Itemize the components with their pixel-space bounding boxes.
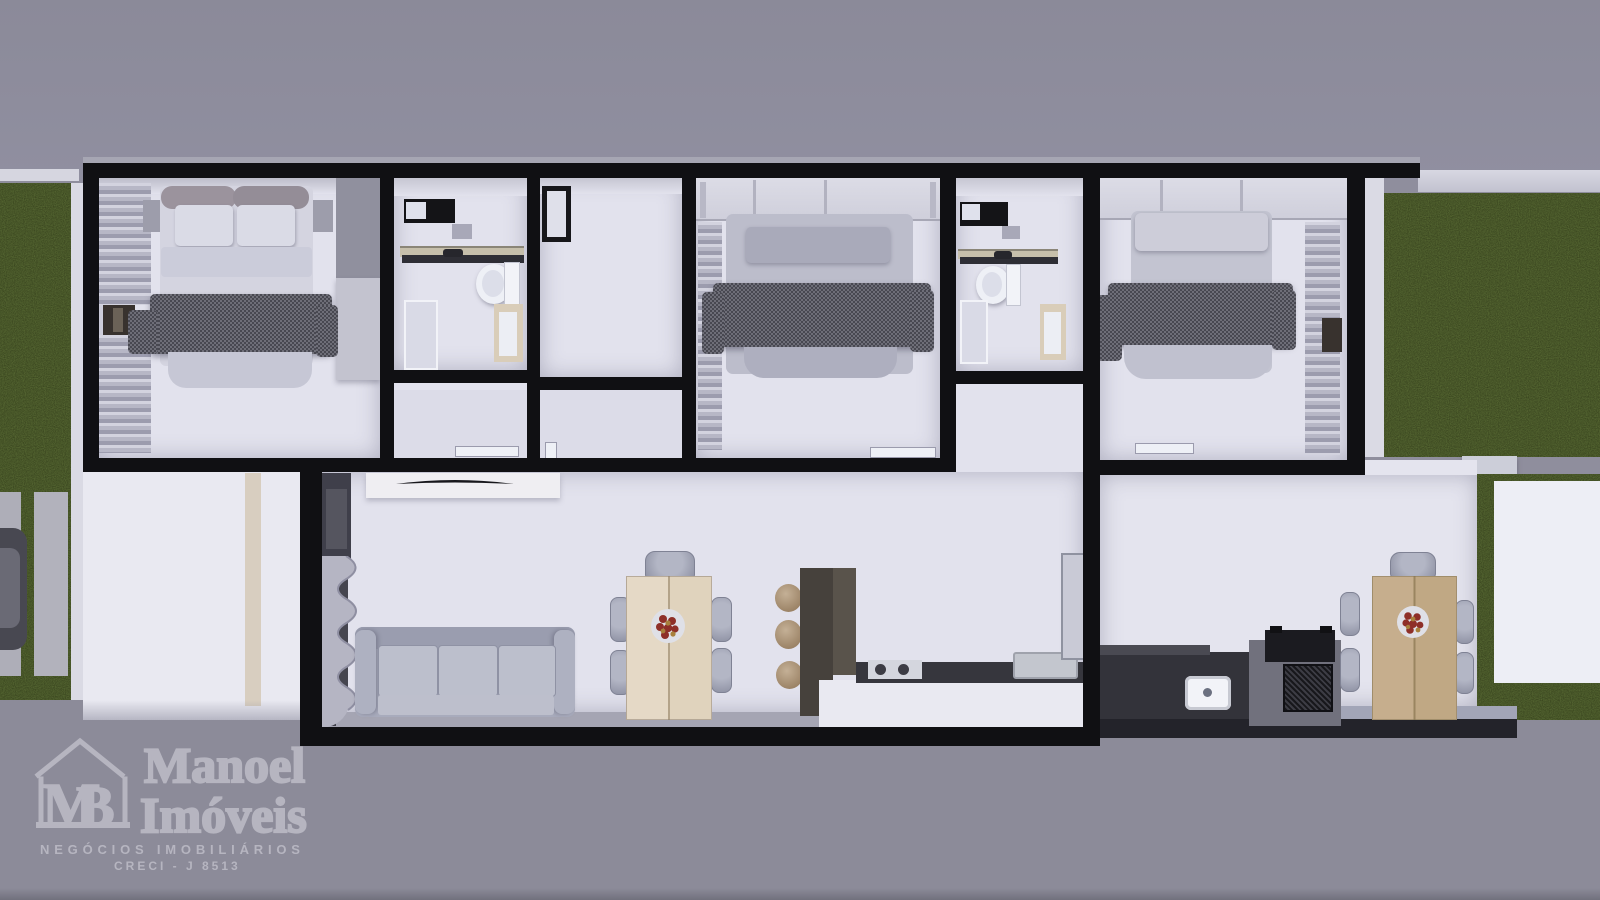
svg-text:B: B [76,774,115,839]
svg-text:Imóveis: Imóveis [140,787,307,843]
svg-text:Manoel: Manoel [144,737,305,793]
svg-text:CRECI - J 8513: CRECI - J 8513 [114,859,241,873]
svg-text:NEGÓCIOS IMOBILIÁRIOS: NEGÓCIOS IMOBILIÁRIOS [40,842,305,857]
